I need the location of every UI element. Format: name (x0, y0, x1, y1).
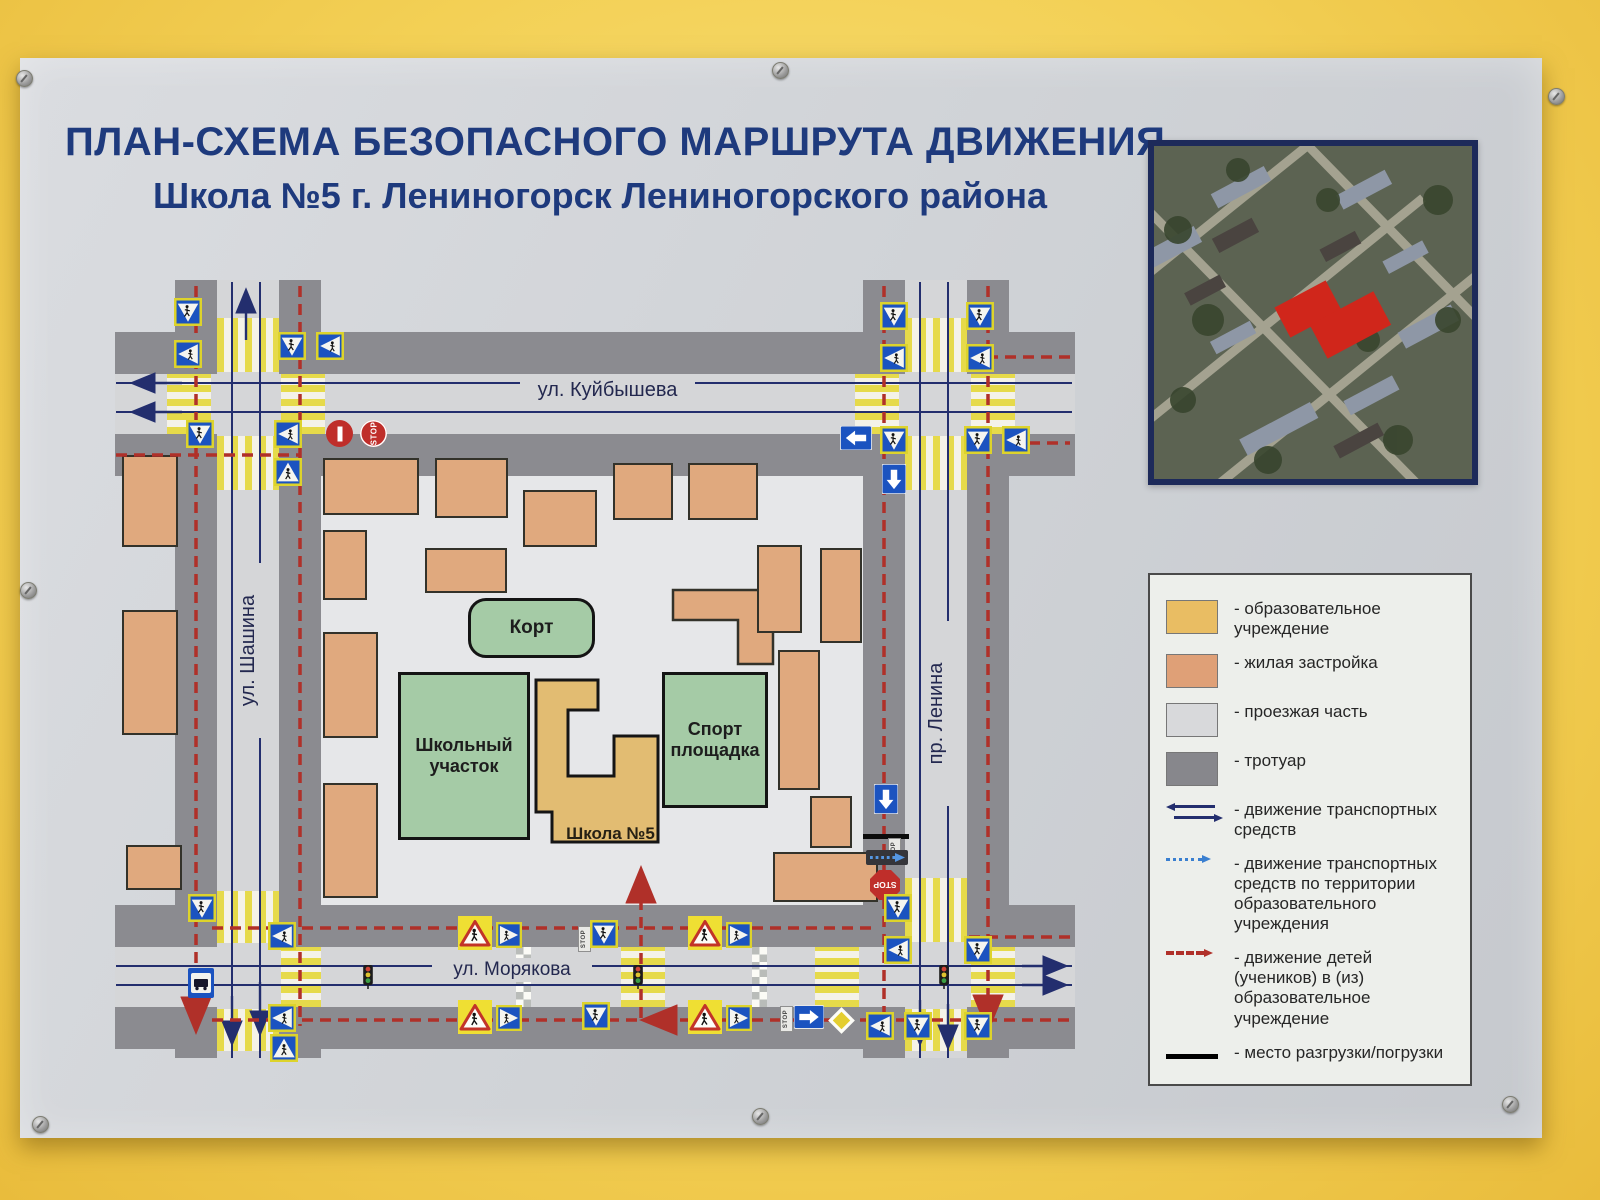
title-line1: ПЛАН-СХЕМА БЕЗОПАСНОГО МАРШРУТА ДВИЖЕНИЯ (65, 120, 1135, 165)
street-label-shashina: ул. Шашина (234, 563, 262, 738)
screw (20, 582, 37, 599)
pedestrian-crossing-sign-icon (186, 420, 214, 448)
pedestrian-crossing-sign-icon (174, 298, 202, 326)
pedestrian-crossing-sign-icon (582, 1002, 610, 1030)
legend-swatch-sidewalk (1166, 752, 1218, 786)
pedestrian-crossing-sign-icon (964, 426, 992, 454)
crossing-direction-sign-icon (268, 1004, 296, 1032)
pedestrian-crossing-ahead-sign-icon (726, 1005, 752, 1031)
legend-item-children-route: - движение детей (учеников) в (из) образ… (1166, 948, 1458, 1028)
children-warning-sign-icon (688, 916, 722, 950)
vehicle-arrows-icon (1166, 800, 1234, 823)
satellite-image (1148, 140, 1478, 485)
crossing-direction-sign-icon (866, 1012, 894, 1040)
one-way-left-arrow-sign-icon (840, 426, 872, 450)
crossing-direction-sign-icon (884, 936, 912, 964)
legend-label: - проезжая часть (1234, 702, 1458, 722)
screw (752, 1108, 769, 1125)
legend-item-roadway: - проезжая часть (1166, 702, 1458, 737)
crossing-direction-sign-icon (316, 332, 344, 360)
legend-swatch-housing (1166, 654, 1218, 688)
pedestrian-crossing-sign-icon (880, 302, 908, 330)
legend-item-loading-zone: - место разгрузки/погрузки (1166, 1043, 1458, 1064)
black-line-icon (1166, 1043, 1234, 1064)
pedestrian-crossing-sign-icon (278, 332, 306, 360)
children-warning-sign-icon (458, 1000, 492, 1034)
crossing-direction-sign-icon (1002, 426, 1030, 454)
traffic-light-icon (632, 964, 644, 989)
pedestrian-crossing-sign-icon (964, 1012, 992, 1040)
pedestrian-crossing-ahead-sign-icon (496, 1005, 522, 1031)
crossing-direction-sign-icon (268, 922, 296, 950)
red-dashed-arrow-icon (1166, 948, 1234, 957)
photo-of-safety-route-poster: { "title": { "line1": "ПЛАН-СХЕМА БЕЗОПА… (0, 0, 1600, 1200)
legend-label: - движение транспортных средств (1234, 800, 1458, 840)
legend-panel: - образовательное учреждение - жилая зас… (1148, 573, 1472, 1086)
legend-item-school-territory-traffic: - движение транспортных средств по терри… (1166, 854, 1458, 934)
crossing-direction-sign-icon (966, 344, 994, 372)
poster-title: ПЛАН-СХЕМА БЕЗОПАСНОГО МАРШРУТА ДВИЖЕНИЯ… (65, 120, 1135, 217)
pedestrian-crossing-sign-icon (590, 920, 618, 948)
legend-swatch-education (1166, 600, 1218, 634)
screw (772, 62, 789, 79)
dotted-arrow-icon (1166, 854, 1234, 863)
title-line2: Школа №5 г. Лениногорск Лениногорского р… (65, 175, 1135, 217)
priority-road-sign-icon (828, 1007, 855, 1034)
street-label-kuybysheva: ул. Куйбышева (520, 376, 695, 404)
school-territory-traffic-sign-icon (866, 850, 908, 865)
crossing-direction-sign-icon (880, 344, 908, 372)
pedestrian-crossing-ahead-sign-icon (496, 922, 522, 948)
legend-label: - место разгрузки/погрузки (1234, 1043, 1458, 1063)
right-arrow-sign-icon (794, 1005, 824, 1029)
pedestrian-crossing-sign-icon (966, 302, 994, 330)
pedestrian-crossing-sign-icon (964, 936, 992, 964)
pedestrian-crossing-sign-icon (270, 1034, 298, 1062)
children-warning-sign-icon (688, 1000, 722, 1034)
pedestrian-crossing-sign-icon (880, 426, 908, 454)
satellite-photo-inset (1148, 140, 1478, 485)
screw (1548, 88, 1565, 105)
stop-sign-icon: STOP (360, 420, 387, 447)
crossing-direction-sign-icon (174, 340, 202, 368)
screw (16, 70, 33, 87)
traffic-light-icon (938, 964, 950, 989)
legend-label: - движение транспортных средств по терри… (1234, 854, 1458, 934)
legend-label: - тротуар (1234, 751, 1458, 771)
legend-item-housing: - жилая застройка (1166, 653, 1458, 688)
legend-item-vehicle-traffic: - движение транспортных средств (1166, 800, 1458, 840)
street-label-moryakova: ул. Морякова (432, 958, 592, 982)
down-arrow-sign-icon (874, 784, 898, 814)
street-label-lenina: пр. Ленина (922, 621, 950, 806)
no-entry-sign-icon (326, 420, 353, 447)
legend-item-education: - образовательное учреждение (1166, 599, 1458, 639)
down-arrow-sign-icon (882, 464, 906, 494)
crossing-direction-sign-icon (274, 420, 302, 448)
screw (1502, 1096, 1519, 1113)
poster-board: ПЛАН-СХЕМА БЕЗОПАСНОГО МАРШРУТА ДВИЖЕНИЯ… (20, 58, 1542, 1138)
legend-label: - образовательное учреждение (1234, 599, 1458, 639)
screw (32, 1116, 49, 1133)
legend-label: - движение детей (учеников) в (из) образ… (1234, 948, 1458, 1028)
bus-stop-sign-icon (188, 968, 214, 998)
traffic-light-icon (362, 964, 374, 989)
pedestrian-crossing-sign-icon (188, 894, 216, 922)
pedestrian-crossing-sign-icon (274, 458, 302, 486)
legend-label: - жилая застройка (1234, 653, 1458, 673)
route-map: Корт Школьный участок Спорт площадка Шко… (110, 278, 1085, 1070)
loading-zone-line (863, 834, 909, 839)
legend-swatch-roadway (1166, 703, 1218, 737)
pedestrian-crossing-sign-icon (884, 894, 912, 922)
children-warning-sign-icon (458, 916, 492, 950)
legend-item-sidewalk: - тротуар (1166, 751, 1458, 786)
pedestrian-crossing-ahead-sign-icon (726, 922, 752, 948)
stop-tag: STOP (780, 1006, 793, 1032)
pedestrian-crossing-sign-icon (904, 1012, 932, 1040)
